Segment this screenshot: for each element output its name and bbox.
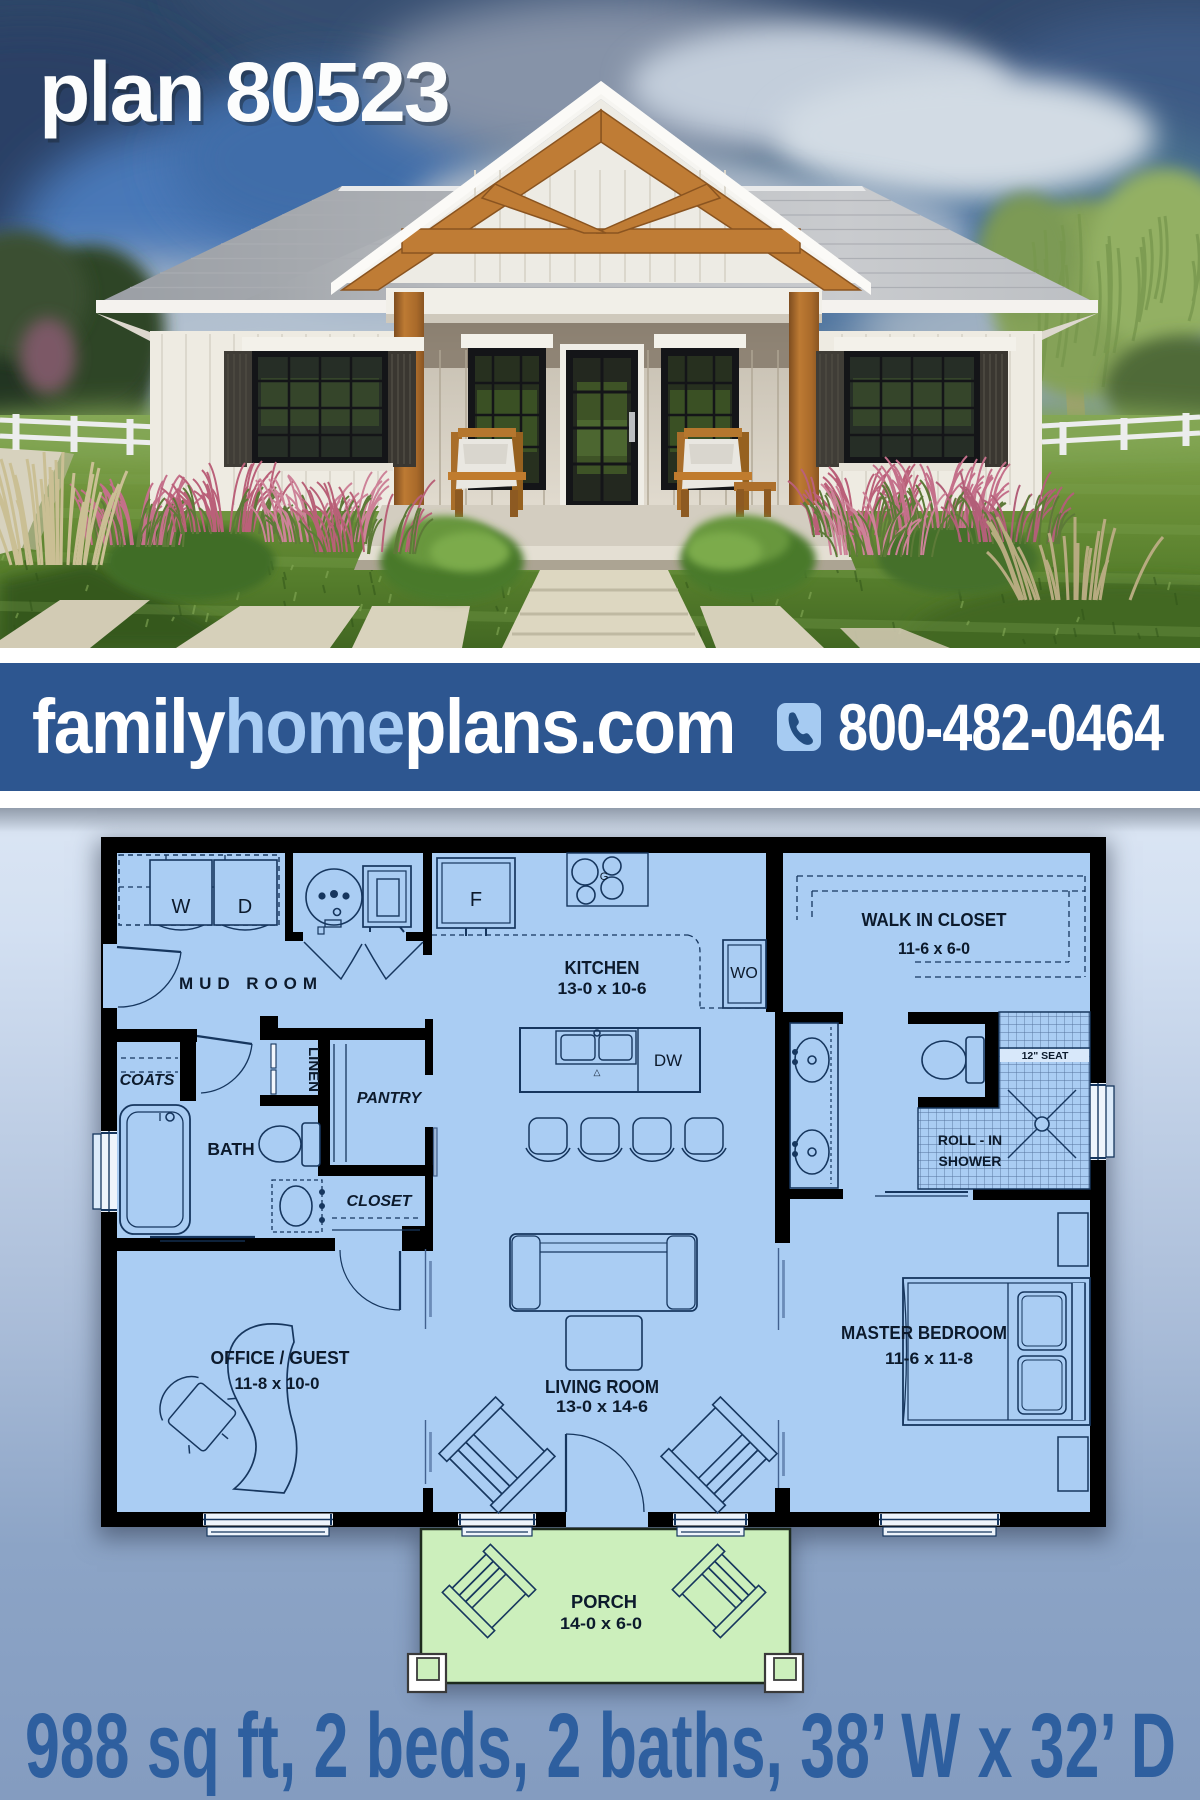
svg-text:DW: DW [654,1051,682,1070]
svg-text:△: △ [594,1067,601,1077]
svg-text:CLOSET: CLOSET [347,1193,413,1210]
svg-text:COATS: COATS [120,1072,175,1089]
svg-text:F: F [470,889,482,911]
svg-text:KITCHEN: KITCHEN [565,958,640,978]
svg-text:BATH: BATH [207,1139,254,1159]
svg-text:LINEN: LINEN [305,1047,322,1092]
svg-text:ROLL - IN: ROLL - IN [938,1132,1002,1148]
svg-text:11-8 x 10-0: 11-8 x 10-0 [235,1374,320,1393]
svg-text:WO: WO [730,965,758,982]
svg-text:LIVING ROOM: LIVING ROOM [545,1376,659,1397]
svg-text:plan 80523: plan 80523 [39,45,449,139]
svg-text:MUD ROOM: MUD ROOM [179,974,317,993]
svg-text:14-0 x 6-0: 14-0 x 6-0 [560,1614,642,1633]
svg-text:PORCH: PORCH [571,1591,637,1612]
svg-text:D: D [238,896,252,918]
svg-text:11-6 x 6-0: 11-6 x 6-0 [898,939,970,958]
svg-text:11-6 x 11-8: 11-6 x 11-8 [885,1349,973,1368]
svg-text:PANTRY: PANTRY [357,1090,423,1107]
svg-text:SHOWER: SHOWER [939,1153,1002,1169]
svg-text:WALK IN CLOSET: WALK IN CLOSET [862,910,1007,930]
svg-text:13-0 x 10-6: 13-0 x 10-6 [558,979,647,998]
svg-text:G: G [600,871,609,883]
svg-text:12" SEAT: 12" SEAT [1022,1050,1069,1062]
svg-text:13-0 x 14-6: 13-0 x 14-6 [556,1397,648,1416]
svg-text:OFFICE / GUEST: OFFICE / GUEST [211,1347,351,1368]
svg-text:MASTER BEDROOM: MASTER BEDROOM [841,1322,1007,1343]
svg-text:W: W [172,896,191,918]
